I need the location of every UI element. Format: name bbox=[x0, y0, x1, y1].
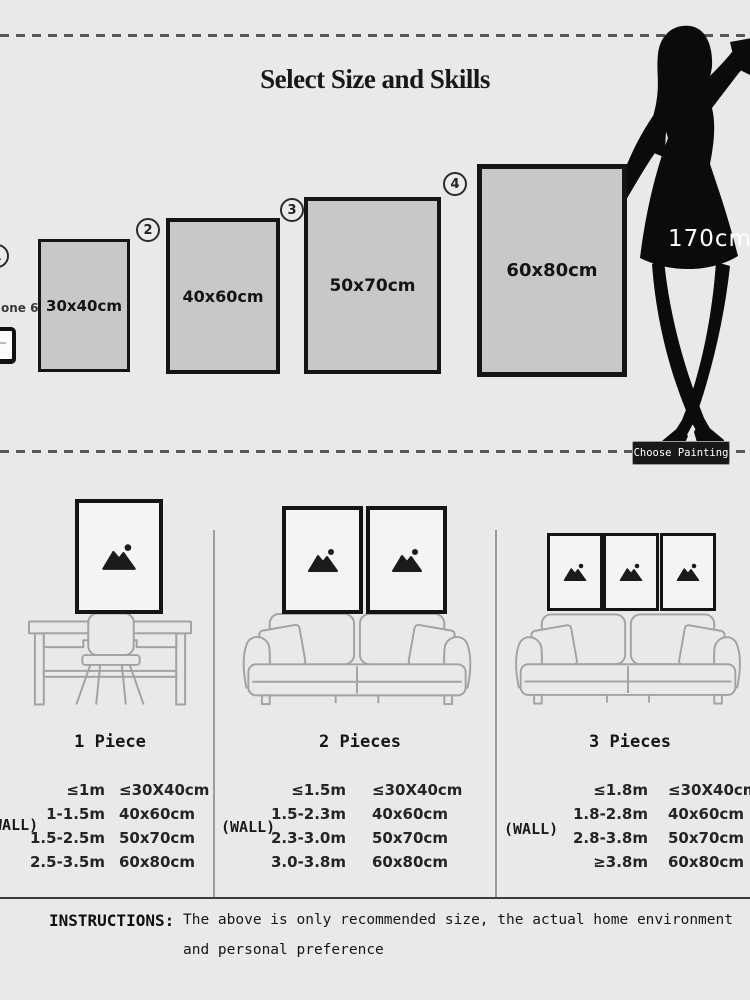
image-placeholder-icon bbox=[676, 562, 700, 582]
size-table-row: 1.5-2.3m 40x60cm bbox=[258, 803, 448, 825]
size-table-row: 3.0-3.8m 60x80cm bbox=[258, 851, 448, 873]
scene-label-2pieces: 2 Pieces bbox=[285, 732, 435, 752]
image-placeholder-icon bbox=[307, 547, 339, 573]
choose-painting-button[interactable]: Choose Painting bbox=[632, 441, 730, 465]
phone-icon bbox=[0, 327, 16, 364]
phone-model-label: one 6 bbox=[1, 301, 38, 315]
image-placeholder-icon bbox=[391, 547, 423, 573]
size-marker-1: 1 bbox=[0, 244, 9, 268]
size-table-row: ≤1.5m ≤30X40cm bbox=[258, 779, 462, 801]
size-table-row: 2.8-3.8m 50x70cm bbox=[560, 827, 744, 849]
size-guide-infographic: Select Size and Skills 170cm Choose Pain… bbox=[0, 0, 750, 1000]
size-marker-2: 2 bbox=[136, 218, 160, 242]
size-table-row: 1.5-2.5m 50x70cm bbox=[20, 827, 195, 849]
image-placeholder-icon bbox=[563, 562, 587, 582]
size-option-60x80[interactable]: 60x80cm bbox=[477, 164, 627, 377]
size-option-30x40[interactable]: 30x40cm bbox=[38, 239, 130, 372]
size-table-row: 1-1.5m 40x60cm bbox=[20, 803, 195, 825]
image-placeholder-icon bbox=[619, 562, 643, 582]
size-table-row: 2.3-3.0m 50x70cm bbox=[258, 827, 448, 849]
image-placeholder-icon bbox=[101, 542, 137, 571]
size-option-50x70[interactable]: 50x70cm bbox=[304, 197, 441, 374]
wall-label: (WALL) bbox=[504, 820, 558, 838]
size-table-row: ≤1m ≤30X40cm bbox=[20, 779, 209, 801]
size-marker-4: 4 bbox=[443, 172, 467, 196]
size-table-row: 2.5-3.5m 60x80cm bbox=[20, 851, 195, 873]
size-table-row: ≤1.8m ≤30X40cm bbox=[560, 779, 750, 801]
wall-art-frame bbox=[660, 533, 716, 611]
wall-art-frame bbox=[603, 533, 659, 611]
instructions-line1: The above is only recommended size, the … bbox=[183, 912, 733, 928]
size-table-row: ≥3.8m 60x80cm bbox=[560, 851, 744, 873]
model-height-label: 170cm bbox=[668, 226, 750, 252]
size-option-40x60[interactable]: 40x60cm bbox=[166, 218, 280, 374]
wall-art-frame bbox=[75, 499, 163, 614]
scene-divider-right bbox=[495, 530, 497, 897]
size-table-row: 1.8-2.8m 40x60cm bbox=[560, 803, 744, 825]
footer-divider bbox=[0, 897, 750, 899]
size-marker-3: 3 bbox=[280, 198, 304, 222]
sofa-icon bbox=[513, 610, 743, 707]
page-title: Select Size and Skills bbox=[155, 64, 595, 95]
scene-label-1piece: 1 Piece bbox=[40, 732, 180, 752]
sofa-icon bbox=[240, 610, 474, 707]
wall-art-frame bbox=[366, 506, 447, 614]
desk-chair-icon bbox=[27, 613, 195, 708]
instructions-line2: and personal preference bbox=[183, 942, 384, 958]
scene-divider-left bbox=[213, 530, 215, 897]
scene-label-3pieces: 3 Pieces bbox=[555, 732, 705, 752]
instructions-heading: INSTRUCTIONS: bbox=[49, 911, 174, 930]
wall-art-frame bbox=[547, 533, 603, 611]
wall-art-frame bbox=[282, 506, 363, 614]
